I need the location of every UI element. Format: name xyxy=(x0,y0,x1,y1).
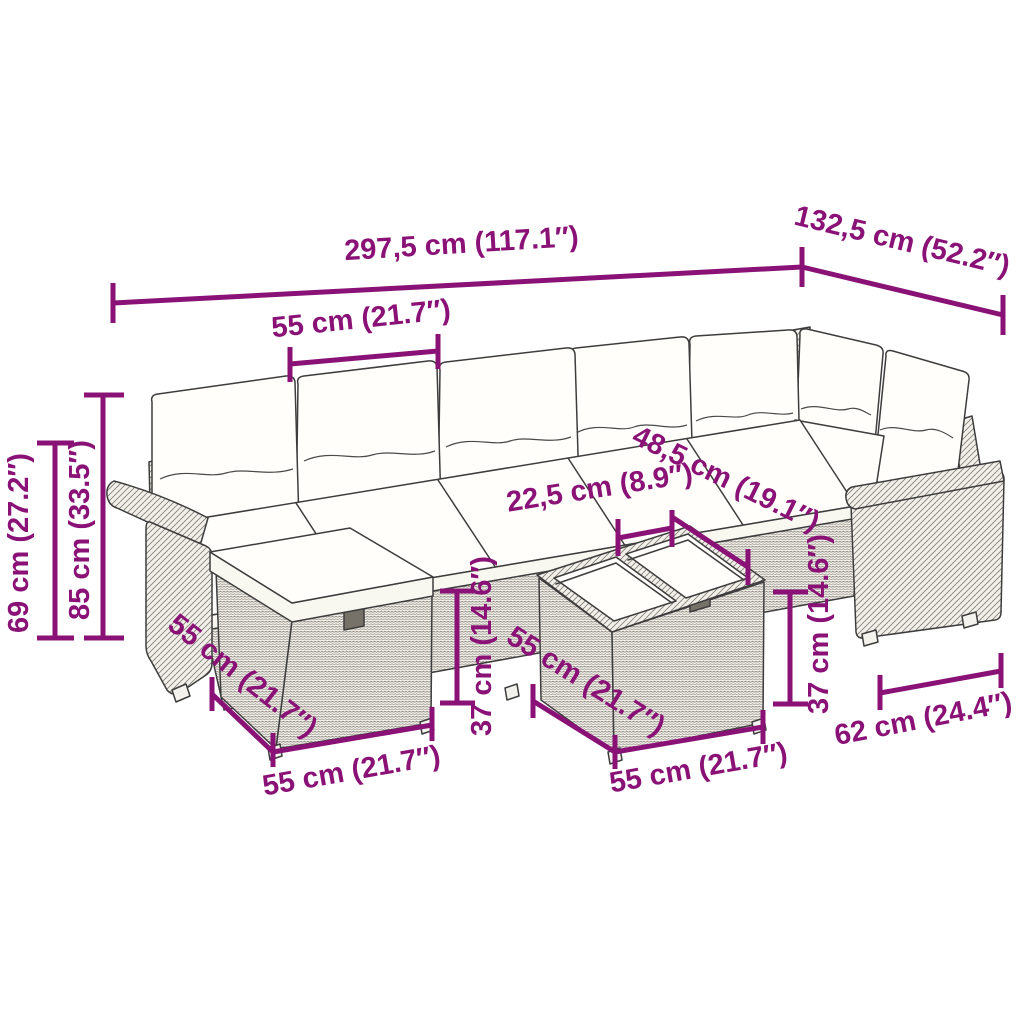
dim-back-height-label: 85 cm (33.5″) xyxy=(64,440,96,620)
dim-seat-width-label: 55 cm (21.7″) xyxy=(270,294,452,345)
footstool xyxy=(210,528,433,749)
left-armrest-panel xyxy=(146,522,212,694)
sofa-illustration xyxy=(107,327,1004,764)
dim-table-height-label: 37 cm (14.6″) xyxy=(466,556,498,736)
diagram-canvas: 297,5 cm (117.1″) 132,5 cm (52.2″) 55 cm… xyxy=(0,0,1024,1024)
dim-arm-height-label: 69 cm (27.2″) xyxy=(3,453,35,633)
product-dimension-diagram: 297,5 cm (117.1″) 132,5 cm (52.2″) 55 cm… xyxy=(0,0,1024,1024)
dim-armrest-width-label: 62 cm (24.4″) xyxy=(832,686,1015,752)
dim-stool-height-label: 37 cm (14.6″) xyxy=(803,534,835,714)
right-armrest xyxy=(846,461,1004,638)
dim-total-length-label: 297,5 cm (117.1″) xyxy=(343,221,579,267)
left-armrest xyxy=(107,481,212,694)
